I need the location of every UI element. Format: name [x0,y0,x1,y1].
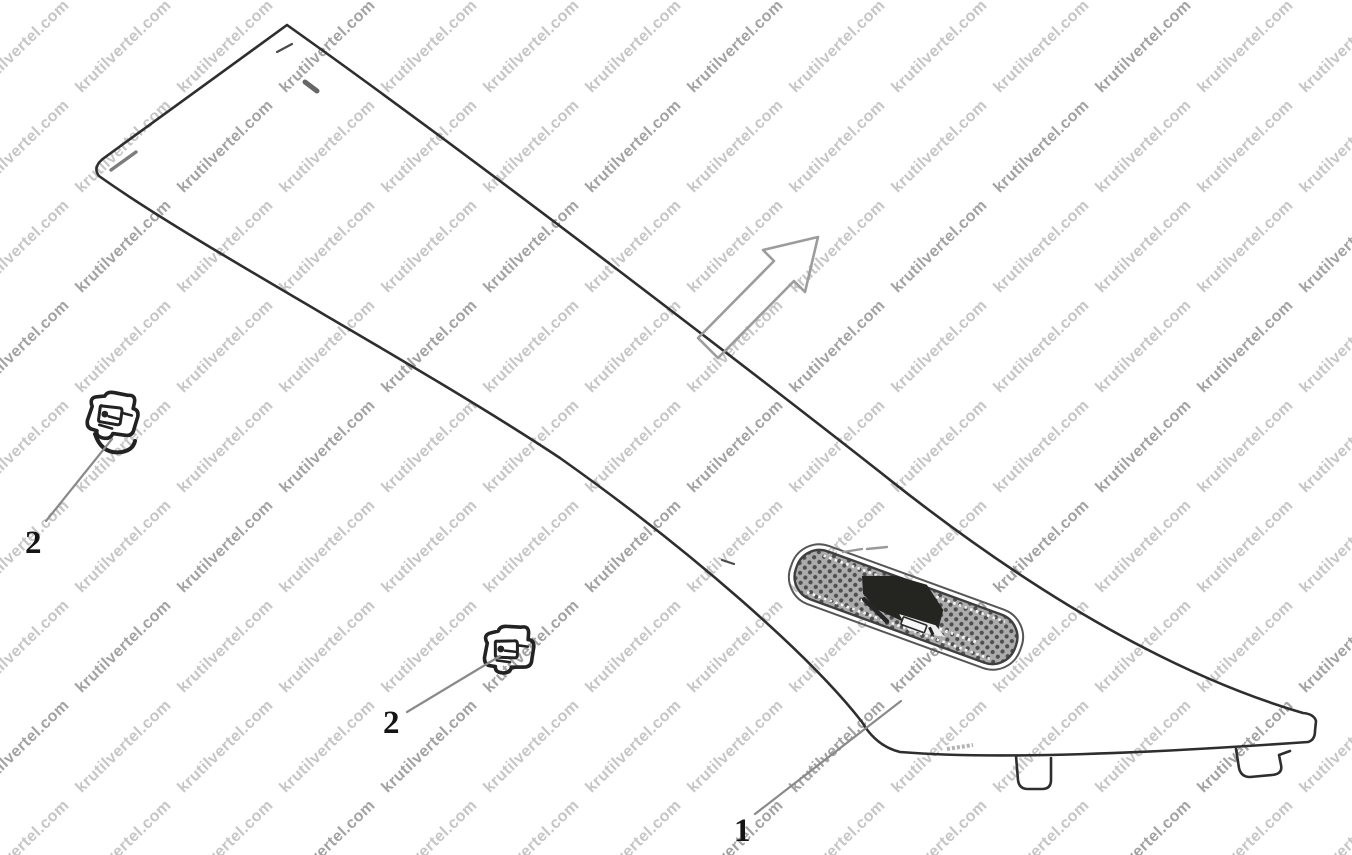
callout-part1: 1 [734,813,751,849]
retaining-clip-lower [482,624,536,675]
parts-diagram: 1 2 2 [0,0,1352,855]
surface-mark-corner [111,152,136,170]
molded-text-mark [947,745,973,749]
surface-mark-edge [722,560,734,564]
diagram-canvas: krutilvertel.comkrutilvertel.comkrutilve… [0,0,1352,855]
leader-line-part1 [755,701,901,814]
lower-tab-right [1236,749,1290,777]
leader-line-part2-lower [407,656,500,712]
pillar-trim-outline [96,25,1316,755]
pillar-trim-panel [96,25,1316,789]
removal-direction-arrow-icon [698,237,818,358]
retaining-clip-upper [86,391,139,452]
lower-tab-left [1016,756,1051,789]
grille-top-dashes [843,547,887,552]
leader-line-part2-upper [46,439,112,521]
callout-part2-upper: 2 [25,525,42,561]
surface-mark-arrowhead [305,82,317,91]
callout-part2-lower: 2 [383,705,400,741]
surface-mark-top [277,44,292,52]
